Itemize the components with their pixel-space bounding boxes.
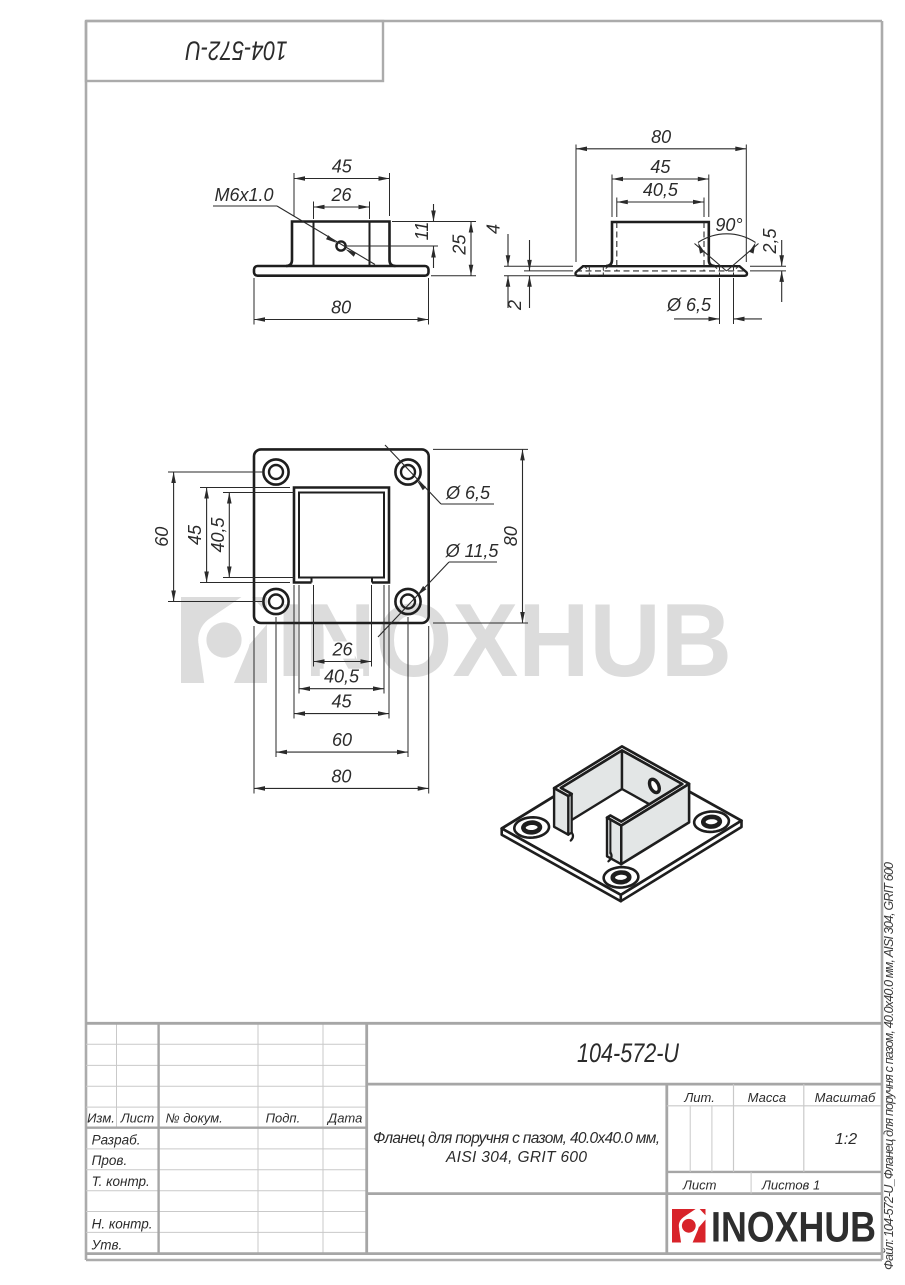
svg-text:80: 80 bbox=[331, 766, 351, 786]
svg-text:60: 60 bbox=[332, 730, 352, 750]
svg-text:Т. контр.: Т. контр. bbox=[92, 1174, 150, 1189]
svg-text:26: 26 bbox=[330, 185, 352, 205]
svg-text:Дата: Дата bbox=[326, 1111, 362, 1126]
svg-text:11: 11 bbox=[412, 222, 432, 241]
svg-text:1:2: 1:2 bbox=[835, 1131, 857, 1148]
svg-text:Н. контр.: Н. контр. bbox=[92, 1217, 153, 1232]
svg-text:Лит.: Лит. bbox=[683, 1090, 714, 1105]
svg-text:INOXHUB: INOXHUB bbox=[711, 1205, 876, 1252]
svg-text:104-572-U: 104-572-U bbox=[577, 1039, 679, 1069]
svg-text:25: 25 bbox=[450, 234, 470, 256]
svg-text:45: 45 bbox=[185, 524, 205, 545]
svg-text:2,5: 2,5 bbox=[760, 228, 780, 255]
svg-text:№ докум.: № докум. bbox=[166, 1111, 223, 1126]
svg-text:Листов 1: Листов 1 bbox=[761, 1177, 820, 1192]
svg-text:Лист: Лист bbox=[682, 1177, 717, 1192]
svg-text:40,5: 40,5 bbox=[208, 517, 228, 553]
svg-text:45: 45 bbox=[650, 157, 671, 177]
svg-text:Лист: Лист bbox=[120, 1111, 155, 1126]
svg-text:40,5: 40,5 bbox=[643, 180, 679, 200]
svg-text:Пров.: Пров. bbox=[92, 1153, 128, 1168]
svg-text:90°: 90° bbox=[715, 215, 742, 235]
svg-text:Утв.: Утв. bbox=[91, 1238, 123, 1253]
svg-text:80: 80 bbox=[651, 127, 671, 147]
svg-text:Масса: Масса bbox=[748, 1090, 786, 1105]
svg-text:80: 80 bbox=[331, 298, 351, 318]
svg-text:2: 2 bbox=[505, 300, 525, 311]
svg-text:Ø 6,5: Ø 6,5 bbox=[445, 483, 491, 503]
svg-text:AISI 304, GRIT 600: AISI 304, GRIT 600 bbox=[445, 1149, 587, 1166]
svg-text:40,5: 40,5 bbox=[324, 667, 360, 687]
svg-text:Разраб.: Разраб. bbox=[92, 1132, 141, 1147]
svg-text:Подп.: Подп. bbox=[266, 1111, 301, 1126]
svg-text:Масштаб: Масштаб bbox=[815, 1090, 876, 1105]
svg-text:M6x1.0: M6x1.0 bbox=[214, 185, 273, 205]
svg-text:45: 45 bbox=[332, 157, 353, 177]
svg-text:26: 26 bbox=[331, 640, 353, 660]
svg-text:Ø 11,5: Ø 11,5 bbox=[445, 541, 500, 561]
svg-text:Фланец для поручня с пазом, 40: Фланец для поручня с пазом, 40.0x40.0 мм… bbox=[373, 1130, 660, 1147]
svg-text:Ø 6,5: Ø 6,5 bbox=[666, 295, 712, 315]
svg-text:80: 80 bbox=[501, 526, 521, 546]
svg-text:60: 60 bbox=[152, 527, 172, 547]
svg-text:104-572-U: 104-572-U bbox=[185, 35, 287, 65]
svg-text:45: 45 bbox=[331, 692, 352, 712]
svg-text:Изм.: Изм. bbox=[87, 1111, 115, 1126]
svg-text:Файл: 104-572-U_Фланец для пор: Файл: 104-572-U_Фланец для поручня с паз… bbox=[882, 862, 896, 1270]
svg-text:4: 4 bbox=[484, 224, 504, 234]
